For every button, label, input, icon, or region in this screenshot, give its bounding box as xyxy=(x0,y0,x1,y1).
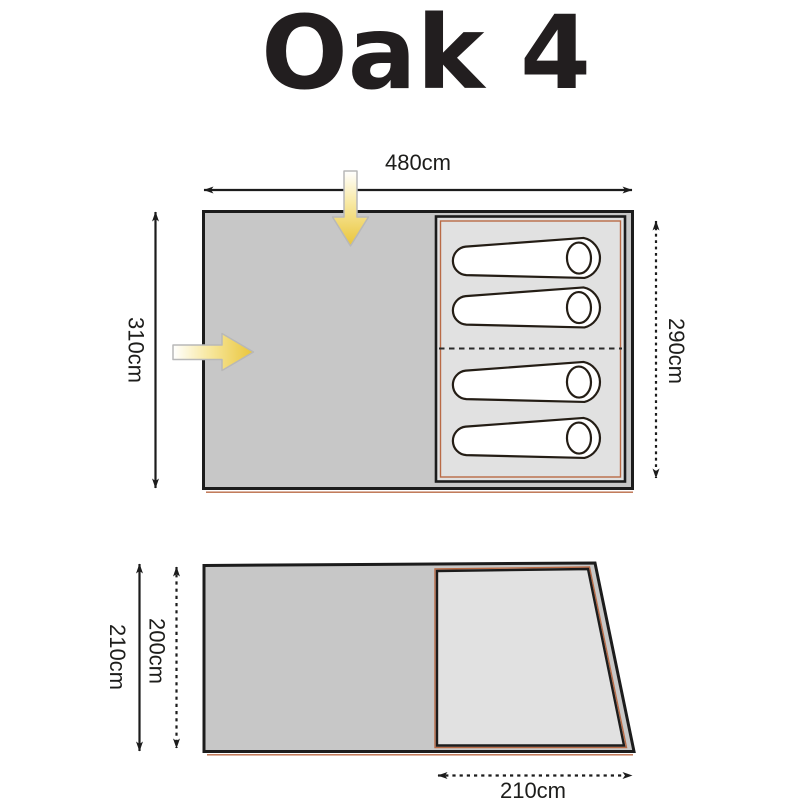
pillow xyxy=(567,422,592,454)
footprint-inner-depth-dimension-label: 200cm xyxy=(145,618,170,684)
door-width-dimension-label: 210cm xyxy=(500,778,566,800)
pillow xyxy=(567,292,592,324)
tent-diagram-page: Oak 4 xyxy=(0,0,800,800)
pillow xyxy=(567,242,592,274)
depth-dimension-label: 310cm xyxy=(124,317,149,383)
floor-plan: 480cm 310cm 290cm xyxy=(124,150,690,492)
footprint-view: 210cm 200cm 210cm xyxy=(105,563,634,800)
pillow xyxy=(567,366,592,398)
tent-diagrams: 480cm 310cm 290cm 210cm 200cm 210cm xyxy=(0,0,800,800)
width-dimension-label: 480cm xyxy=(385,150,451,175)
bedroom-depth-dimension-label: 290cm xyxy=(664,318,689,384)
footprint-depth-dimension-label: 210cm xyxy=(105,624,130,690)
